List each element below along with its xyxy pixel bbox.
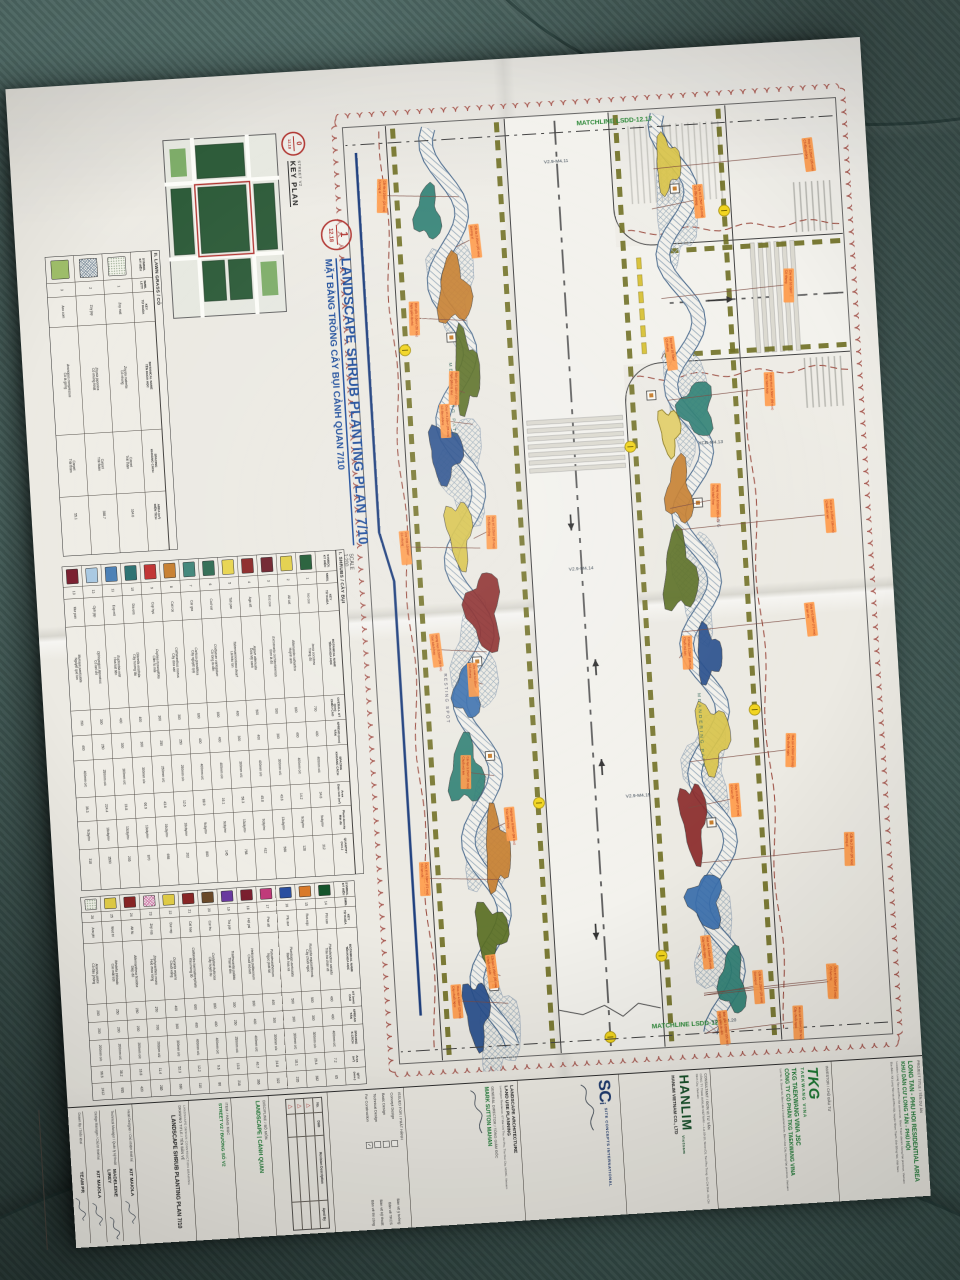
plant-annotation-tag: Bón gốc 5.00m² (55 nos)Ngải gấm lá nhỏ bbox=[409, 301, 420, 337]
plant-annotation-tag: Cắt tỉa 2.25m² (25 nos)Dương xỉ bbox=[752, 970, 765, 1005]
plant-annotation-tag: Hạng mục 8.50m² (99 nos)Trúc bách hợp bbox=[710, 483, 721, 521]
svg-text:Chuỗi mỏ két: Chuỗi mỏ két bbox=[682, 637, 688, 656]
bubble-number: 1 bbox=[336, 224, 351, 244]
titleblock-issued-for: ISSUED FOR / PHÁT HÀNH Concept DesignBản… bbox=[327, 1088, 412, 1232]
svg-text:Cỏ nhung: Cỏ nhung bbox=[784, 270, 788, 284]
keyplan-bubble-ref: 12.18 bbox=[285, 139, 294, 149]
legend-swatch bbox=[162, 894, 175, 906]
issued-checkbox bbox=[391, 1140, 398, 1147]
plant-annotation-tag: Cắt tỉa 2.25m² (25 nos)Dương xỉ bbox=[377, 179, 388, 213]
plant-annotation-tag: Hoa sứ 4.50m² (20 nos)Cây chuỗi ngọc bbox=[792, 1005, 804, 1040]
legend-swatch bbox=[221, 890, 234, 902]
svg-text:Trúc bách hợp: Trúc bách hợp bbox=[711, 485, 715, 505]
legend-swatch bbox=[84, 899, 97, 911]
plant-annotation-tag: Hạng mục 8.50m² (99 nos)Trúc bách hợp bbox=[429, 633, 444, 672]
legend-swatch bbox=[299, 886, 312, 898]
titleblock-revisions: No.DateRevision DescriptionApvd By△△△ bbox=[268, 1092, 335, 1235]
tkg-logo: TKG bbox=[804, 1066, 822, 1100]
issued-checkbox bbox=[374, 1141, 381, 1148]
svg-text:Cỏ lan chi: Cỏ lan chi bbox=[420, 864, 425, 878]
svg-text:Cỏ đậu phộng: Cỏ đậu phộng bbox=[487, 517, 492, 537]
plant-annotation-tag: Duy trì 6.50m² (72 nos)Cỏ lan chi bbox=[729, 783, 742, 818]
plant-annotation-tag: Duy trì 3.25m² (35 nos)Cỏ đậu phộng bbox=[439, 404, 452, 439]
legend-shrubs-table: I. SHRUBS / CÂY BỤISYMBOLKÝ HIỆUSMBLKEYT… bbox=[62, 549, 364, 891]
legend-swatch bbox=[66, 569, 79, 584]
legend-swatch bbox=[85, 568, 98, 583]
photo-scene: MATCHLINE LSDD-12.17MATCHLINE LSDD-12.19… bbox=[0, 0, 960, 1280]
svg-text:Duy trì 6.50m² (72 nos): Duy trì 6.50m² (72 nos) bbox=[833, 966, 837, 998]
plant-annotation-tag: Bón gốc 5.00m² (55 nos)Ngải gấm lá nhỏ bbox=[717, 1010, 731, 1047]
titleblock-drawing-title: LANDSCAPE DESIGN CONSTRUCTION DRAWING DR… bbox=[132, 1101, 197, 1244]
key-plan: 0 12.18 STREET V2 KEY PLAN bbox=[159, 131, 320, 399]
keyplan-bubble-number: 0 bbox=[293, 136, 304, 151]
titleblock-consultant: CONSULTANT / ĐƠN VỊ TƯ VẤN CÔNG TY TNHH … bbox=[618, 1069, 718, 1214]
legend-swatch bbox=[182, 893, 195, 905]
svg-text:Dương xỉ: Dương xỉ bbox=[378, 180, 382, 193]
legend-swatch bbox=[105, 566, 118, 581]
hanlim-logo-sub: Vietnam bbox=[681, 1135, 687, 1154]
sci-name: SITE CONCEPTS INTERNATIONAL bbox=[603, 1108, 613, 1187]
plant-annotation-tag: Hoa sứ 4.50m² (20 nos)Cây chuỗi ngọc bbox=[785, 733, 796, 767]
plant-annotation-tag: Duy trì 3.25m² (35 nos)Cỏ đậu phộng bbox=[486, 515, 497, 549]
plant-annotation-tag: Cải tạo 3.25m² (36 nos)Chuỗi mỏ két bbox=[823, 498, 836, 533]
legend-lawn-table: II. LAWN GRASS / CỎSYMBOLKÝ HIỆUSMBLLETT… bbox=[45, 250, 178, 556]
svg-text:Cắt tỉa 2.25m² (25 nos): Cắt tỉa 2.25m² (25 nos) bbox=[849, 833, 855, 865]
keyplan-map bbox=[162, 133, 288, 320]
plant-annotation-tag: Cải tạo 3.25m² (36 nos)Chuỗi mỏ két bbox=[460, 755, 471, 789]
plant-annotation-tag: Duy trì 6.50m² (72 nos)Cỏ lan chi bbox=[828, 965, 839, 999]
legend-swatch bbox=[221, 559, 234, 574]
legend-swatch bbox=[280, 556, 293, 571]
plan-svg: MATCHLINE LSDD-12.17MATCHLINE LSDD-12.19… bbox=[331, 83, 904, 1078]
drawing-sheet-paper: MATCHLINE LSDD-12.17MATCHLINE LSDD-12.19… bbox=[5, 37, 930, 1247]
plant-annotation-tag: Duy trì 3.25m² (35 nos)Cỏ đậu phộng bbox=[801, 137, 816, 172]
svg-text:Cỏ lan chi: Cỏ lan chi bbox=[829, 967, 833, 981]
legend-swatch bbox=[163, 563, 176, 578]
landscape-plan-drawing: MATCHLINE LSDD-12.17MATCHLINE LSDD-12.19… bbox=[331, 83, 904, 1078]
plant-annotation-tag: Zoy mat 10.50m²Cỏ nhung bbox=[783, 268, 794, 302]
plant-annotation-tag: Hoa sứ 4.50m² (20 nos)Cây chuỗi ngọc bbox=[450, 984, 463, 1019]
legend-swatch bbox=[260, 557, 273, 572]
svg-text:Cây chuỗi ngọc: Cây chuỗi ngọc bbox=[793, 1007, 799, 1029]
legend-swatch bbox=[51, 260, 70, 280]
legend-swatch bbox=[260, 888, 273, 900]
legend-swatch bbox=[124, 565, 137, 580]
titleblock-staff: Head Designer / Chủ nhiệm thiết kếKIT MA… bbox=[39, 1104, 140, 1249]
svg-text:Ngải gấm lá nhỏ: Ngải gấm lá nhỏ bbox=[410, 303, 415, 326]
sheet-number-value: LSDD-12.18 bbox=[38, 1198, 40, 1248]
titleblock-investor: INVESTOR / CHỦ ĐẦU TƯ TKG TAEKWANG VINA … bbox=[710, 1062, 840, 1209]
legend-swatch bbox=[202, 561, 215, 576]
titleblock-landscape-arch: LANDSCAPE ARCHITECTURE LAND USE PLANNING… bbox=[403, 1081, 525, 1228]
scale-label: Scale / Tỷ lệ bbox=[38, 1156, 41, 1174]
legend-swatch bbox=[241, 558, 254, 573]
revision-triangle: △ bbox=[295, 1098, 305, 1114]
scale-word: SCALE bbox=[348, 553, 354, 570]
revision-triangle: △ bbox=[286, 1099, 296, 1115]
plant-annotation-tag: Cải tạo 3.25m² (36 nos)Chuỗi mỏ két bbox=[682, 635, 694, 669]
svg-text:RESTING SPOT: RESTING SPOT bbox=[443, 673, 451, 724]
legend-swatch bbox=[143, 895, 156, 907]
svg-text:Ngải gấm lá nhỏ: Ngải gấm lá nhỏ bbox=[450, 372, 454, 395]
titleblock-item: ITEM / HẠNG MỤC STREET V2 / ĐƯỜNG SỐ V2 bbox=[188, 1098, 239, 1240]
svg-text:Dương xỉ: Dương xỉ bbox=[845, 833, 849, 846]
legend-swatch bbox=[123, 896, 136, 908]
titleblock-project: PROJECT TITLE / TÊN DỰ ÁN LONG TAN - PHU… bbox=[831, 1056, 931, 1201]
legend-swatch bbox=[279, 887, 292, 899]
legend-swatch bbox=[201, 891, 214, 903]
issued-checkbox: ✓ bbox=[366, 1142, 373, 1149]
svg-text:Cây chuỗi ngọc: Cây chuỗi ngọc bbox=[786, 735, 791, 757]
legend-swatch bbox=[318, 884, 331, 896]
sheet-number-label: Sheet No / Số bản vẽ bbox=[39, 1198, 44, 1229]
plant-annotation-tag: Duy trì 6.50m² (72 nos)Cỏ lan chi bbox=[419, 862, 431, 896]
legend-swatch bbox=[104, 897, 117, 909]
plant-annotation-tag: Cắt tỉa 2.25m² (25 nos)Dương xỉ bbox=[844, 832, 855, 866]
plant-annotation-tag: Duy trì 6.50m² (72 nos)Cỏ lan chi bbox=[804, 602, 818, 637]
legend-shrubs-table-2: SYMBOLKÝ HIỆUSMBLKEYTỪ KHÓABOTANICAL NAM… bbox=[80, 880, 366, 1100]
plant-annotation-tag: Bón gốc 5.00m² (55 nos)Ngải gấm lá nhỏ bbox=[449, 371, 460, 407]
legend-swatch bbox=[240, 889, 253, 901]
titleblock-site-concepts: SCi SITE CONCEPTS INTERNATIONAL bbox=[517, 1075, 627, 1221]
legend-swatch bbox=[144, 564, 157, 579]
keyplan-bubble: 0 12.18 bbox=[281, 131, 306, 156]
svg-text:Cỏ nhung: Cỏ nhung bbox=[468, 664, 473, 678]
detail-bubble: 1 12.18 bbox=[320, 218, 353, 251]
issued-checkbox bbox=[383, 1141, 390, 1148]
plant-annotation-tag: Zoy mat 10.50m²Cỏ nhung bbox=[467, 662, 480, 697]
hanlim-logo: HANLIM bbox=[677, 1074, 693, 1131]
legend-swatch bbox=[107, 256, 126, 276]
legend-swatch bbox=[183, 562, 196, 577]
revision-triangle: △ bbox=[304, 1098, 314, 1114]
plant-annotation-tag: Hạng mục 8.50m² (99 nos)Trúc bách hợp bbox=[764, 372, 776, 411]
bubble-ref: 12.18 bbox=[325, 228, 337, 242]
sci-logo: SCi bbox=[595, 1079, 613, 1104]
legend-swatch bbox=[79, 258, 98, 278]
svg-text:Chuỗi mỏ két: Chuỗi mỏ két bbox=[461, 757, 466, 775]
legend-swatch bbox=[299, 555, 312, 570]
